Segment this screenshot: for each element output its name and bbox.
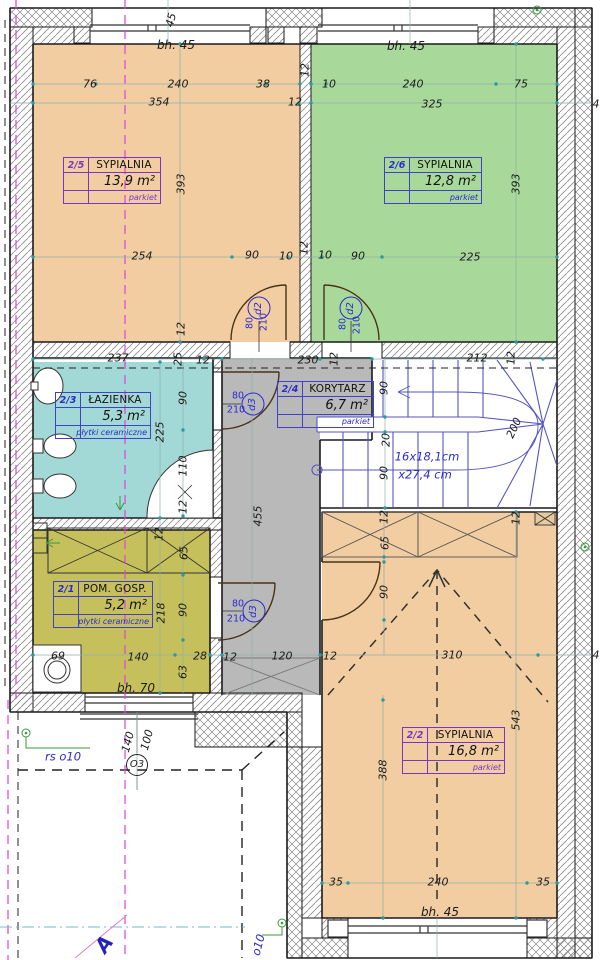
dimension-label: 310	[442, 650, 463, 661]
dimension-label: 12	[329, 352, 340, 366]
floor-plan: 2/5 SYPIALNIA 13,9 m² parkiet 2/6 SYPIAL…	[0, 0, 600, 960]
dimension-label: bh. 45	[387, 40, 425, 52]
room-finish: płytki ceramiczne	[54, 615, 152, 627]
door-marker: d2	[340, 297, 363, 320]
room-name: POM. GOSP.	[78, 582, 152, 596]
dimension-label: rs o10	[45, 751, 81, 763]
room-area: 5,2 m²	[54, 597, 152, 615]
room-name: ŁAZIENKA	[80, 393, 150, 407]
room-id: 2/4	[278, 382, 302, 396]
dimension-label: 325	[422, 99, 443, 110]
room-table-sypialnia-26: 2/6 SYPIALNIA 12,8 m² parkiet	[384, 157, 482, 204]
dimension-label: 543	[511, 710, 522, 731]
dimension-label: 12	[506, 351, 517, 365]
dimension-label: 120	[272, 651, 293, 662]
dimension-label: bh. 45	[157, 39, 195, 51]
dimension-label: 38	[256, 79, 270, 90]
dimension-label: 35	[329, 877, 343, 888]
dimension-label: 240	[403, 79, 424, 90]
dimension-label: 90	[351, 251, 365, 262]
dimension-label: 240	[428, 877, 449, 888]
dimension-label: 12	[511, 511, 522, 525]
dimension-label: 90	[379, 381, 390, 395]
dimension-label: 12	[288, 97, 302, 108]
dimension-label: 10	[318, 250, 332, 261]
dimension-label: 254	[132, 251, 153, 262]
room-finish: parkiet	[64, 191, 160, 203]
room-table-pom-gosp: 2/1 POM. GOSP. 5,2 m² płytki ceramiczne	[53, 581, 153, 628]
room-table-lazienka: 2/3 ŁAZIENKA 5,3 m² płytki ceramiczne	[55, 392, 151, 439]
dimension-label: 354	[149, 97, 170, 108]
room-table-sypialnia-25: 2/5 SYPIALNIA 13,9 m² parkiet	[63, 157, 161, 204]
dimension-label: 63	[178, 665, 189, 679]
dimension-label: 12	[154, 527, 165, 541]
door-marker: d3	[243, 600, 266, 623]
dimension-label: bh. 45	[421, 906, 459, 918]
dimension-label: 110	[178, 456, 189, 477]
dimension-label: 76	[83, 79, 97, 90]
door-marker: d2	[248, 297, 271, 320]
dimension-label: 80	[245, 317, 255, 329]
dimension-label: 12	[299, 241, 310, 255]
dimension-label: 12	[300, 63, 311, 77]
dimension-label: 25	[173, 352, 184, 366]
dimension-label: 212	[467, 353, 488, 364]
dimension-label: 10	[279, 251, 293, 262]
dimension-label: 90	[379, 466, 390, 480]
dimension-label: 12	[323, 651, 337, 662]
dimension-label: 12	[196, 355, 210, 366]
room-name: SYPIALNIA	[409, 158, 481, 172]
room-finish: płytki ceramiczne	[56, 426, 150, 438]
room-id: 2/1	[54, 582, 78, 596]
dimension-label: 69	[51, 651, 65, 662]
dimension-label: 237	[108, 353, 129, 364]
dimension-label: 45	[164, 12, 178, 28]
dimension-label: 10	[322, 79, 336, 90]
dimension-label: 393	[511, 174, 522, 195]
room-table-korytarz: 2/4 KORYTARZ 6,7 m² parkiet	[277, 381, 374, 428]
dimension-label: 90	[245, 250, 259, 261]
room-name: KORYTARZ	[302, 382, 373, 396]
room-area: 6,7 m²	[278, 397, 373, 415]
dimension-label: 90	[178, 391, 189, 405]
dimension-label: 230	[298, 355, 319, 366]
dimension-label: 240	[168, 79, 189, 90]
dimension-label: 65	[179, 546, 190, 560]
dimension-label: 90	[379, 585, 390, 599]
window-marker: O3	[126, 754, 148, 776]
room-table-sypialnia-22: 2/2 SYPIALNIA 16,8 m² parkiet	[402, 727, 505, 774]
dimension-label: 225	[460, 252, 481, 263]
room-name: SYPIALNIA	[88, 158, 160, 172]
dimension-label: 28	[193, 651, 207, 662]
room-finish: parkiet	[278, 415, 373, 427]
dimension-label: 140	[128, 652, 149, 663]
dimension-label: 75	[514, 79, 528, 90]
dimension-label: 4	[593, 650, 600, 661]
dimension-label: bh. 70	[117, 682, 155, 694]
room-finish: parkiet	[403, 761, 504, 773]
dimension-label: 12	[379, 510, 390, 524]
dimension-label: 16x18,1cm	[395, 451, 460, 463]
room-id: 2/5	[64, 158, 88, 172]
room-area: 5,3 m²	[56, 408, 150, 426]
room-id: 2/3	[56, 393, 80, 407]
room-area: 16,8 m²	[403, 743, 504, 761]
dimension-label: 393	[176, 174, 187, 195]
dimension-label: 455	[253, 506, 264, 527]
room-name: SYPIALNIA	[427, 728, 504, 742]
dimension-label: 20	[381, 433, 392, 447]
room-area: 13,9 m²	[64, 173, 160, 191]
dimension-label: 80	[338, 318, 348, 330]
room-finish: parkiet	[385, 191, 481, 203]
floor-plan-drawing	[0, 0, 600, 960]
room-id: 2/6	[385, 158, 409, 172]
door-marker: d3	[242, 393, 265, 416]
dimension-label: 35	[536, 877, 550, 888]
dimension-label: 225	[155, 422, 166, 443]
dimension-label: 12	[178, 500, 189, 514]
dimension-label: 4	[593, 99, 600, 110]
dimension-label: 218	[156, 603, 167, 624]
dimension-label: 12	[176, 322, 187, 336]
dimension-label: 388	[378, 760, 389, 781]
room-area: 12,8 m²	[385, 173, 481, 191]
dimension-label: x27,4 cm	[398, 469, 452, 481]
room-id: 2/2	[403, 728, 427, 742]
dimension-label: 65	[380, 536, 391, 550]
dimension-label: 12	[223, 652, 237, 663]
dimension-label: 90	[178, 603, 189, 617]
dimension-label: 210	[227, 614, 245, 624]
